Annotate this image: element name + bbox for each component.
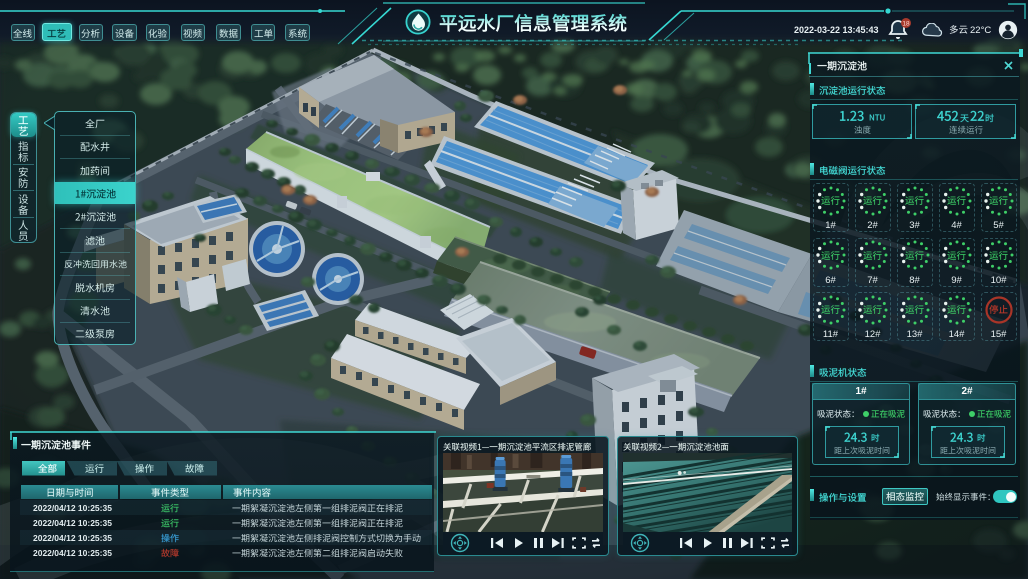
svg-text:18: 18 bbox=[902, 20, 910, 27]
